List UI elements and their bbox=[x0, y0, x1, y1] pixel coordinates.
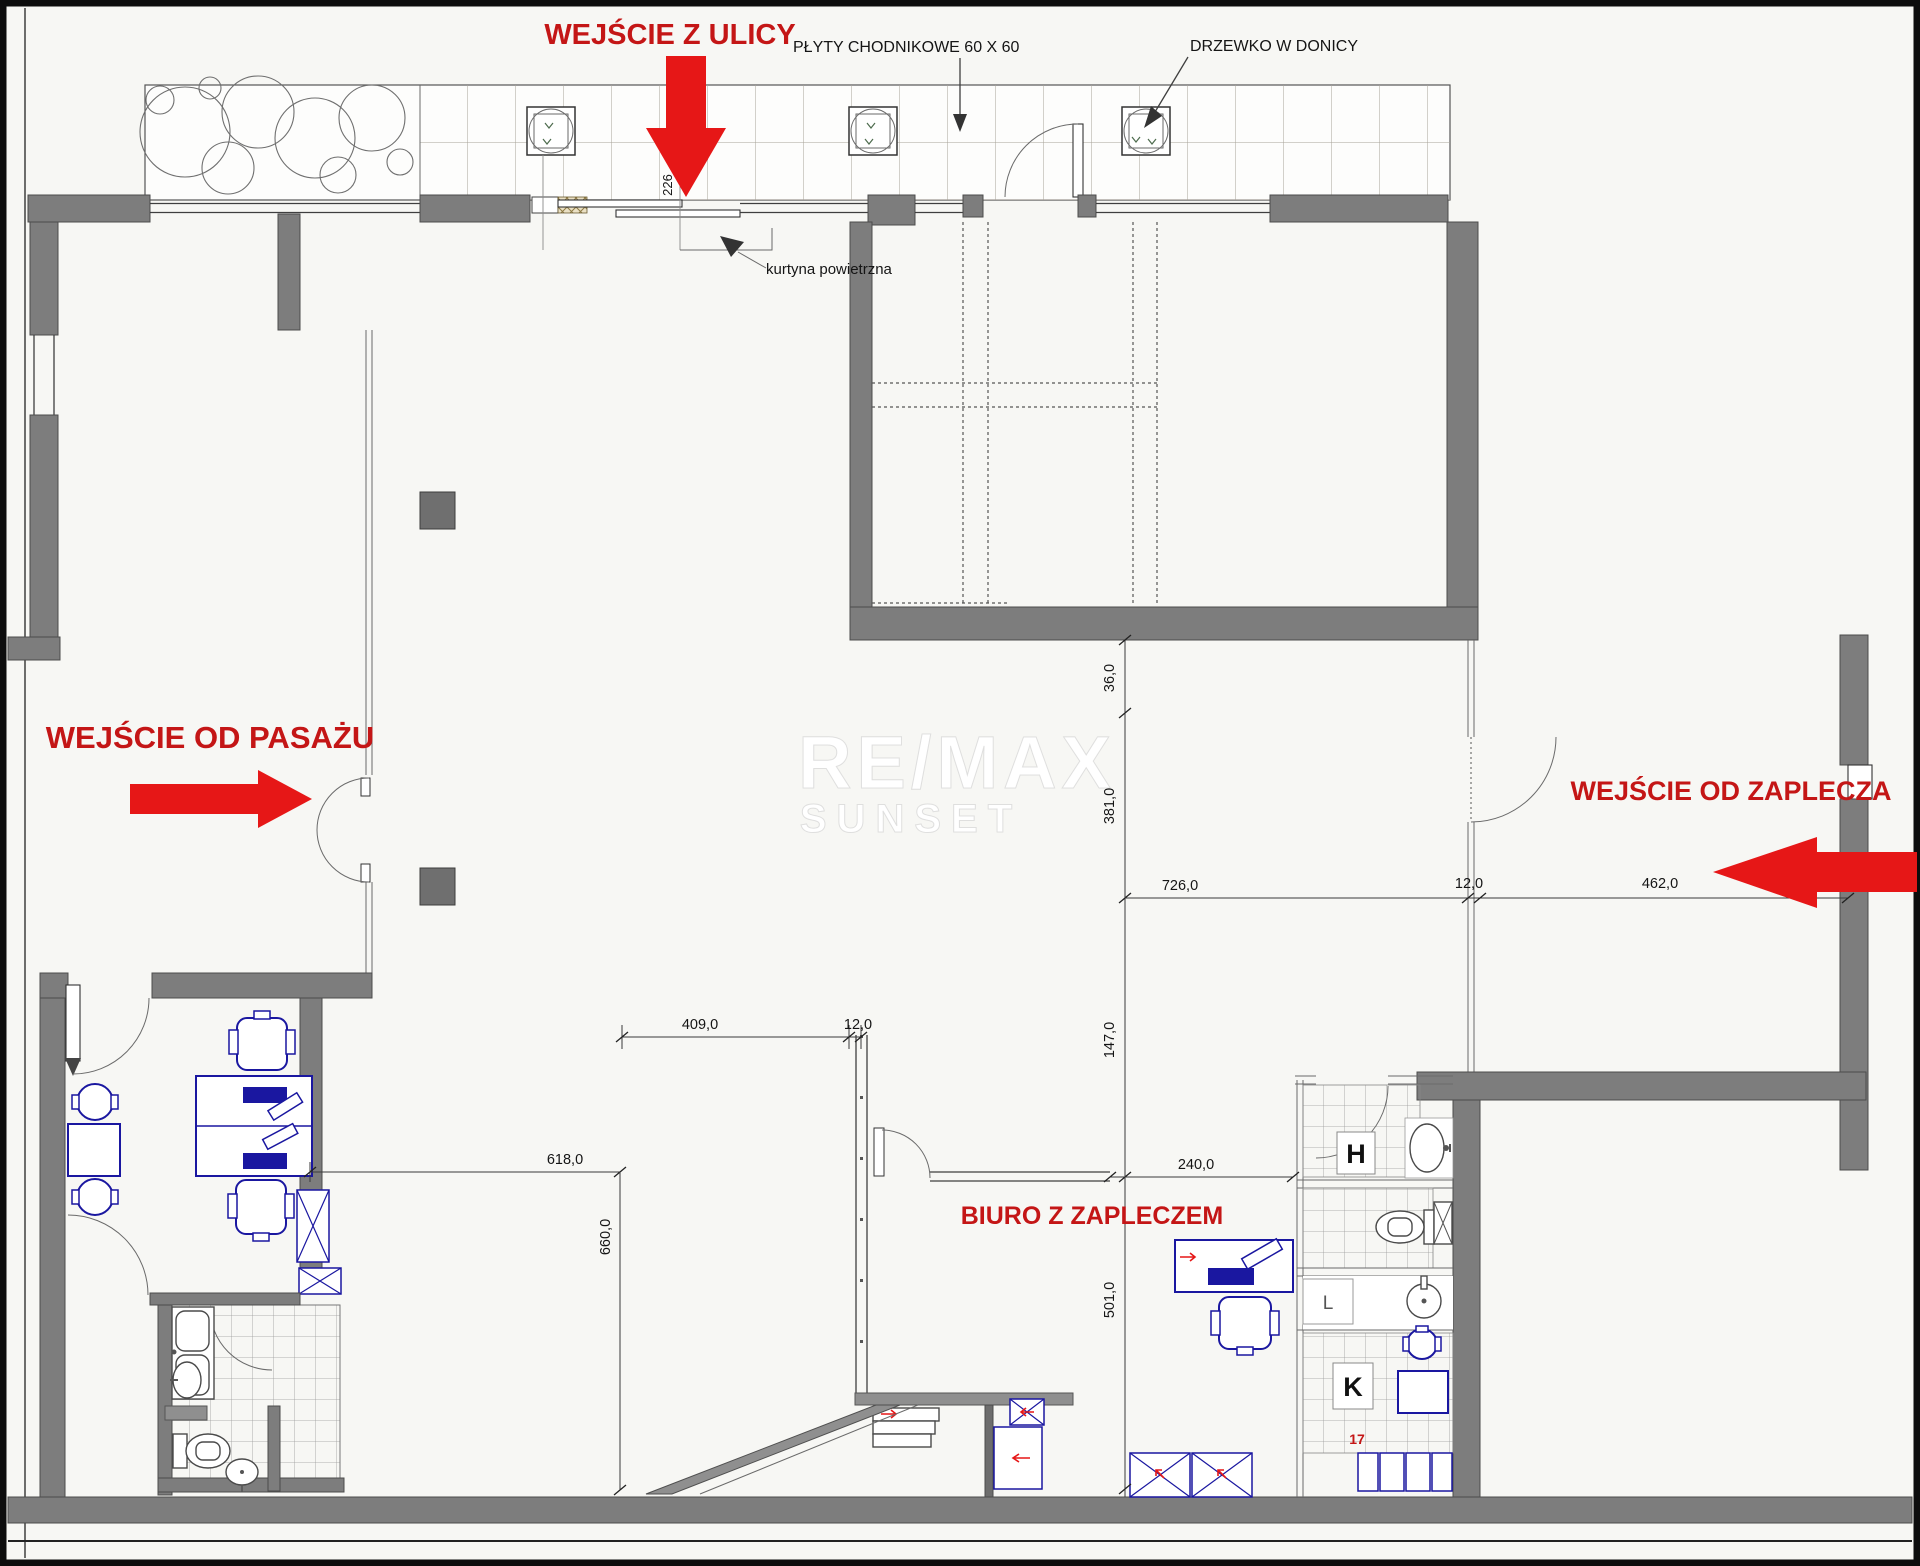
dim-618: 618,0 bbox=[547, 1152, 583, 1168]
dim-240: 240,0 bbox=[1178, 1157, 1214, 1173]
table bbox=[1398, 1371, 1448, 1413]
room-l-label: L bbox=[1303, 1279, 1353, 1324]
floorplan-drawing: RE/MAX SUNSET bbox=[0, 0, 1920, 1566]
air-curtain-note: kurtyna powietrzna bbox=[766, 261, 893, 278]
dim-226: 226 bbox=[660, 174, 675, 196]
toilet-icon bbox=[1376, 1210, 1434, 1244]
dim-381: 381,0 bbox=[1102, 788, 1118, 824]
sanitary-rooms: H L bbox=[1295, 1076, 1453, 1497]
sidewalk-note: PŁYTY CHODNIKOWE 60 X 60 bbox=[793, 39, 1020, 56]
entrance-back-label: WEJŚCIE OD ZAPLECZA bbox=[1570, 775, 1891, 806]
dim-726: 726,0 bbox=[1162, 878, 1198, 894]
room-k: K bbox=[1343, 1372, 1363, 1402]
steps-icon bbox=[873, 1408, 939, 1447]
dim-12a: 12,0 bbox=[1455, 876, 1483, 892]
column bbox=[420, 868, 455, 905]
office-chair-icon bbox=[1211, 1297, 1279, 1355]
dim-147: 147,0 bbox=[1102, 1022, 1118, 1058]
floorplan-page: RE/MAX SUNSET bbox=[0, 0, 1920, 1566]
dim-660: 660,0 bbox=[598, 1219, 614, 1255]
small-table bbox=[68, 1124, 120, 1176]
watermark-line2: SUNSET bbox=[800, 797, 1022, 841]
vent-shaft-icon bbox=[1434, 1202, 1452, 1244]
desk-group bbox=[1175, 1239, 1293, 1292]
room-l: L bbox=[1323, 1293, 1334, 1314]
dim-409: 409,0 bbox=[682, 1017, 718, 1033]
room-k-label: K bbox=[1333, 1363, 1373, 1409]
keyboard-icon bbox=[243, 1153, 287, 1169]
room-h: H bbox=[1346, 1139, 1366, 1169]
office-room-label: BIURO Z ZAPLECZEM bbox=[961, 1202, 1224, 1230]
entrance-street-label: WEJŚCIE Z ULICY bbox=[544, 17, 795, 51]
room-h-label: H bbox=[1337, 1132, 1375, 1174]
dim-462: 462,0 bbox=[1642, 876, 1678, 892]
tree-note: DRZEWKO W DONICY bbox=[1190, 38, 1358, 55]
dim-36: 36,0 bbox=[1102, 664, 1118, 692]
bottom-wall-band bbox=[8, 1497, 1912, 1523]
sink-icon bbox=[1405, 1118, 1453, 1178]
keyboard-icon bbox=[1208, 1268, 1254, 1285]
dim-12b: 12,0 bbox=[844, 1017, 872, 1033]
entrance-passage-label: WEJŚCIE OD PASAŻU bbox=[46, 719, 374, 755]
desk-group bbox=[196, 1076, 312, 1176]
column bbox=[420, 492, 455, 529]
watermark-line1: RE/MAX bbox=[798, 721, 1116, 804]
toilet-icon bbox=[173, 1434, 230, 1468]
dim-501: 501,0 bbox=[1102, 1282, 1118, 1318]
keyboard-icon bbox=[243, 1087, 287, 1103]
room-17: 17 bbox=[1349, 1431, 1365, 1447]
